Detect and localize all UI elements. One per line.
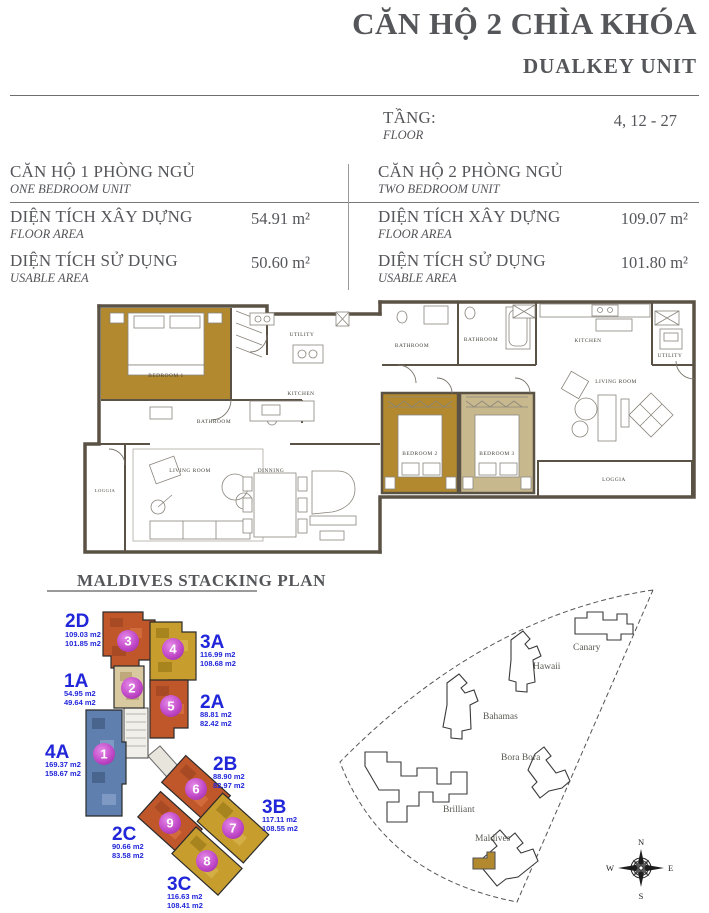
svg-text:83.58 m2: 83.58 m2: [112, 851, 144, 860]
unit-badge-9: 9: [159, 812, 181, 834]
room-label-bedroom1: BEDROOM 1: [148, 373, 184, 379]
unit-badge-2: 2: [121, 677, 143, 699]
compass-rose-icon: N S W E: [606, 837, 673, 901]
page-title: CĂN HỘ 2 CHÌA KHÓA: [352, 6, 697, 42]
unit2-floor-area-row: DIỆN TÍCH XÂY DỰNG FLOOR AREA: [378, 207, 561, 242]
unit-badge-1: 1: [93, 743, 115, 765]
column-divider: [348, 164, 349, 290]
room-label-utility-1br: UTILITY: [290, 332, 315, 338]
room-label-bathroom-2br-b: BATHROOM: [464, 337, 498, 343]
u2-usable-area-label-vi: DIỆN TÍCH SỬ DỤNG: [378, 251, 546, 271]
unit1-usable-area-row: DIỆN TÍCH SỬ DỤNG USABLE AREA: [10, 251, 178, 286]
label-bora-bora: Bora Bora: [501, 753, 541, 763]
room-label-bathroom-1br: BATHROOM: [197, 419, 231, 425]
stacking-plan-rule: [47, 590, 257, 592]
unit1-name-vi: CĂN HỘ 1 PHÒNG NGỦ: [10, 162, 195, 182]
svg-text:169.37 m2: 169.37 m2: [45, 760, 81, 769]
unit-badge-4: 4: [162, 638, 184, 660]
label-maldives: Maldives: [475, 834, 511, 844]
unit-label-2c: 2C 90.66 m2 83.58 m2: [112, 824, 144, 860]
dualkey-brochure-page: { "header": { "title_vi": "CĂN HỘ 2 CHÌA…: [0, 0, 709, 913]
label-bahamas: Bahamas: [483, 712, 518, 722]
u2-usable-area-label-en: USABLE AREA: [378, 271, 546, 286]
u2-usable-area-value: 101.80 m²: [621, 253, 688, 273]
building-bahamas: [443, 674, 478, 739]
room-label-bedroom2: BEDROOM 2: [402, 451, 438, 457]
unit1-floor-area-row: DIỆN TÍCH XÂY DỰNG FLOOR AREA: [10, 207, 193, 242]
unit-badge-7: 7: [222, 817, 244, 839]
svg-text:158.67 m2: 158.67 m2: [45, 769, 81, 778]
floor-plan: BEDROOM 1 BATHROOM UTILITY KITCHEN LIVIN…: [0, 295, 709, 565]
header-divider: [10, 95, 699, 96]
svg-text:1: 1: [100, 747, 107, 762]
room-label-kitchen-1br: KITCHEN: [287, 391, 314, 397]
u2-floor-area-label-en: FLOOR AREA: [378, 227, 561, 242]
room-label-kitchen-2br: KITCHEN: [574, 338, 601, 344]
unit2-usable-area-row: DIỆN TÍCH SỬ DỤNG USABLE AREA: [378, 251, 546, 286]
site-buildings: [365, 612, 633, 886]
svg-text:4: 4: [169, 642, 177, 657]
spec-divider: [10, 202, 699, 203]
unit1-name-en: ONE BEDROOM UNIT: [10, 182, 195, 197]
svg-text:3: 3: [124, 634, 131, 649]
building-maldives-highlight: [473, 852, 495, 869]
svg-text:108.68 m2: 108.68 m2: [200, 659, 236, 668]
svg-text:116.99 m2: 116.99 m2: [200, 650, 235, 659]
u1-usable-area-label-en: USABLE AREA: [10, 271, 178, 286]
svg-text:82.97 m2: 82.97 m2: [213, 781, 245, 790]
compass-n: N: [638, 837, 644, 847]
compass-e: E: [668, 863, 673, 873]
u1-floor-area-value: 54.91 m²: [251, 209, 310, 229]
unit2-header: CĂN HỘ 2 PHÒNG NGỦ TWO BEDROOM UNIT: [378, 162, 563, 197]
compass-w: W: [606, 863, 614, 873]
svg-text:109.03 m2: 109.03 m2: [65, 630, 101, 639]
label-canary: Canary: [573, 643, 601, 653]
svg-text:8: 8: [203, 854, 210, 869]
floor-label-en: FLOOR: [383, 128, 436, 143]
u1-usable-area-value: 50.60 m²: [251, 253, 310, 273]
svg-text:2D: 2D: [65, 611, 89, 632]
unit-label-2b: 2B 88.90 m2 82.97 m2: [213, 754, 245, 790]
u1-floor-area-label-en: FLOOR AREA: [10, 227, 193, 242]
room-label-utility-2br: UTILITY: [658, 353, 683, 359]
svg-text:82.42 m2: 82.42 m2: [200, 719, 232, 728]
u1-floor-area-label-vi: DIỆN TÍCH XÂY DỰNG: [10, 207, 193, 227]
room-label-loggia-1br: LOGGIA: [95, 488, 116, 493]
building-canary: [575, 612, 633, 640]
stacking-plan: 2D 109.03 m2 101.85 m2 3A 116.99 m2 108.…: [0, 596, 340, 913]
unit-badge-6: 6: [185, 778, 207, 800]
svg-text:117.11 m2: 117.11 m2: [262, 815, 297, 824]
stacking-plan-title: MALDIVES STACKING PLAN: [77, 571, 326, 591]
svg-text:7: 7: [229, 821, 236, 836]
u2-floor-area-value: 109.07 m²: [621, 209, 688, 229]
u1-usable-area-label-vi: DIỆN TÍCH SỬ DỤNG: [10, 251, 178, 271]
room-label-living-1br: LIVING ROOM: [169, 468, 211, 474]
svg-text:5: 5: [167, 699, 174, 714]
room-label-bathroom-2br-a: BATHROOM: [395, 343, 429, 349]
unit-badge-5: 5: [160, 695, 182, 717]
unit-label-3a: 3A 116.99 m2 108.68 m2: [200, 632, 236, 668]
unit-label-2d: 2D 109.03 m2 101.85 m2: [65, 611, 101, 648]
svg-text:6: 6: [192, 782, 199, 797]
floor-row: TẦNG: FLOOR: [383, 108, 436, 143]
unit-badge-8: 8: [196, 850, 218, 872]
unit-label-2a: 2A 88.81 m2 82.42 m2: [200, 692, 232, 728]
svg-text:101.85 m2: 101.85 m2: [65, 639, 101, 648]
unit-badge-3: 3: [117, 630, 139, 652]
svg-text:9: 9: [166, 816, 173, 831]
unit1-header: CĂN HỘ 1 PHÒNG NGỦ ONE BEDROOM UNIT: [10, 162, 195, 197]
svg-text:108.55 m2: 108.55 m2: [262, 824, 298, 833]
svg-text:88.81 m2: 88.81 m2: [200, 710, 232, 719]
unit-label-1a: 1A 54.95 m2 49.64 m2: [64, 671, 96, 707]
floor-value: 4, 12 - 27: [614, 111, 677, 131]
unit2-name-vi: CĂN HỘ 2 PHÒNG NGỦ: [378, 162, 563, 182]
label-brilliant: Brilliant: [443, 805, 475, 815]
room-label-dinning: DINNING: [258, 468, 285, 474]
unit-label-3c: 3C 116.63 m2 108.41 m2: [167, 874, 203, 910]
label-hawaii: Hawaii: [533, 662, 561, 672]
svg-text:88.90 m2: 88.90 m2: [213, 772, 245, 781]
site-map: Canary Hawaii Bahamas Bora Bora Brillian…: [335, 580, 709, 913]
room-label-loggia-2br: LOGGIA: [602, 477, 626, 483]
unit2-name-en: TWO BEDROOM UNIT: [378, 182, 563, 197]
compass-s: S: [639, 891, 644, 901]
svg-text:49.64 m2: 49.64 m2: [64, 698, 96, 707]
unit-label-3b: 3B 117.11 m2 108.55 m2: [262, 797, 298, 833]
svg-text:116.63 m2: 116.63 m2: [167, 892, 202, 901]
floor-label-vi: TẦNG:: [383, 108, 436, 128]
svg-text:2: 2: [128, 681, 135, 696]
svg-text:90.66 m2: 90.66 m2: [112, 842, 144, 851]
page-subtitle: DUALKEY UNIT: [523, 54, 697, 79]
svg-text:54.95 m2: 54.95 m2: [64, 689, 96, 698]
u2-floor-area-label-vi: DIỆN TÍCH XÂY DỰNG: [378, 207, 561, 227]
svg-text:108.41 m2: 108.41 m2: [167, 901, 203, 910]
unit-label-4a: 4A 169.37 m2 158.67 m2: [45, 742, 81, 778]
room-label-living-2br: LIVING ROOM: [595, 379, 637, 385]
room-label-bedroom3: BEDROOM 3: [479, 451, 515, 457]
